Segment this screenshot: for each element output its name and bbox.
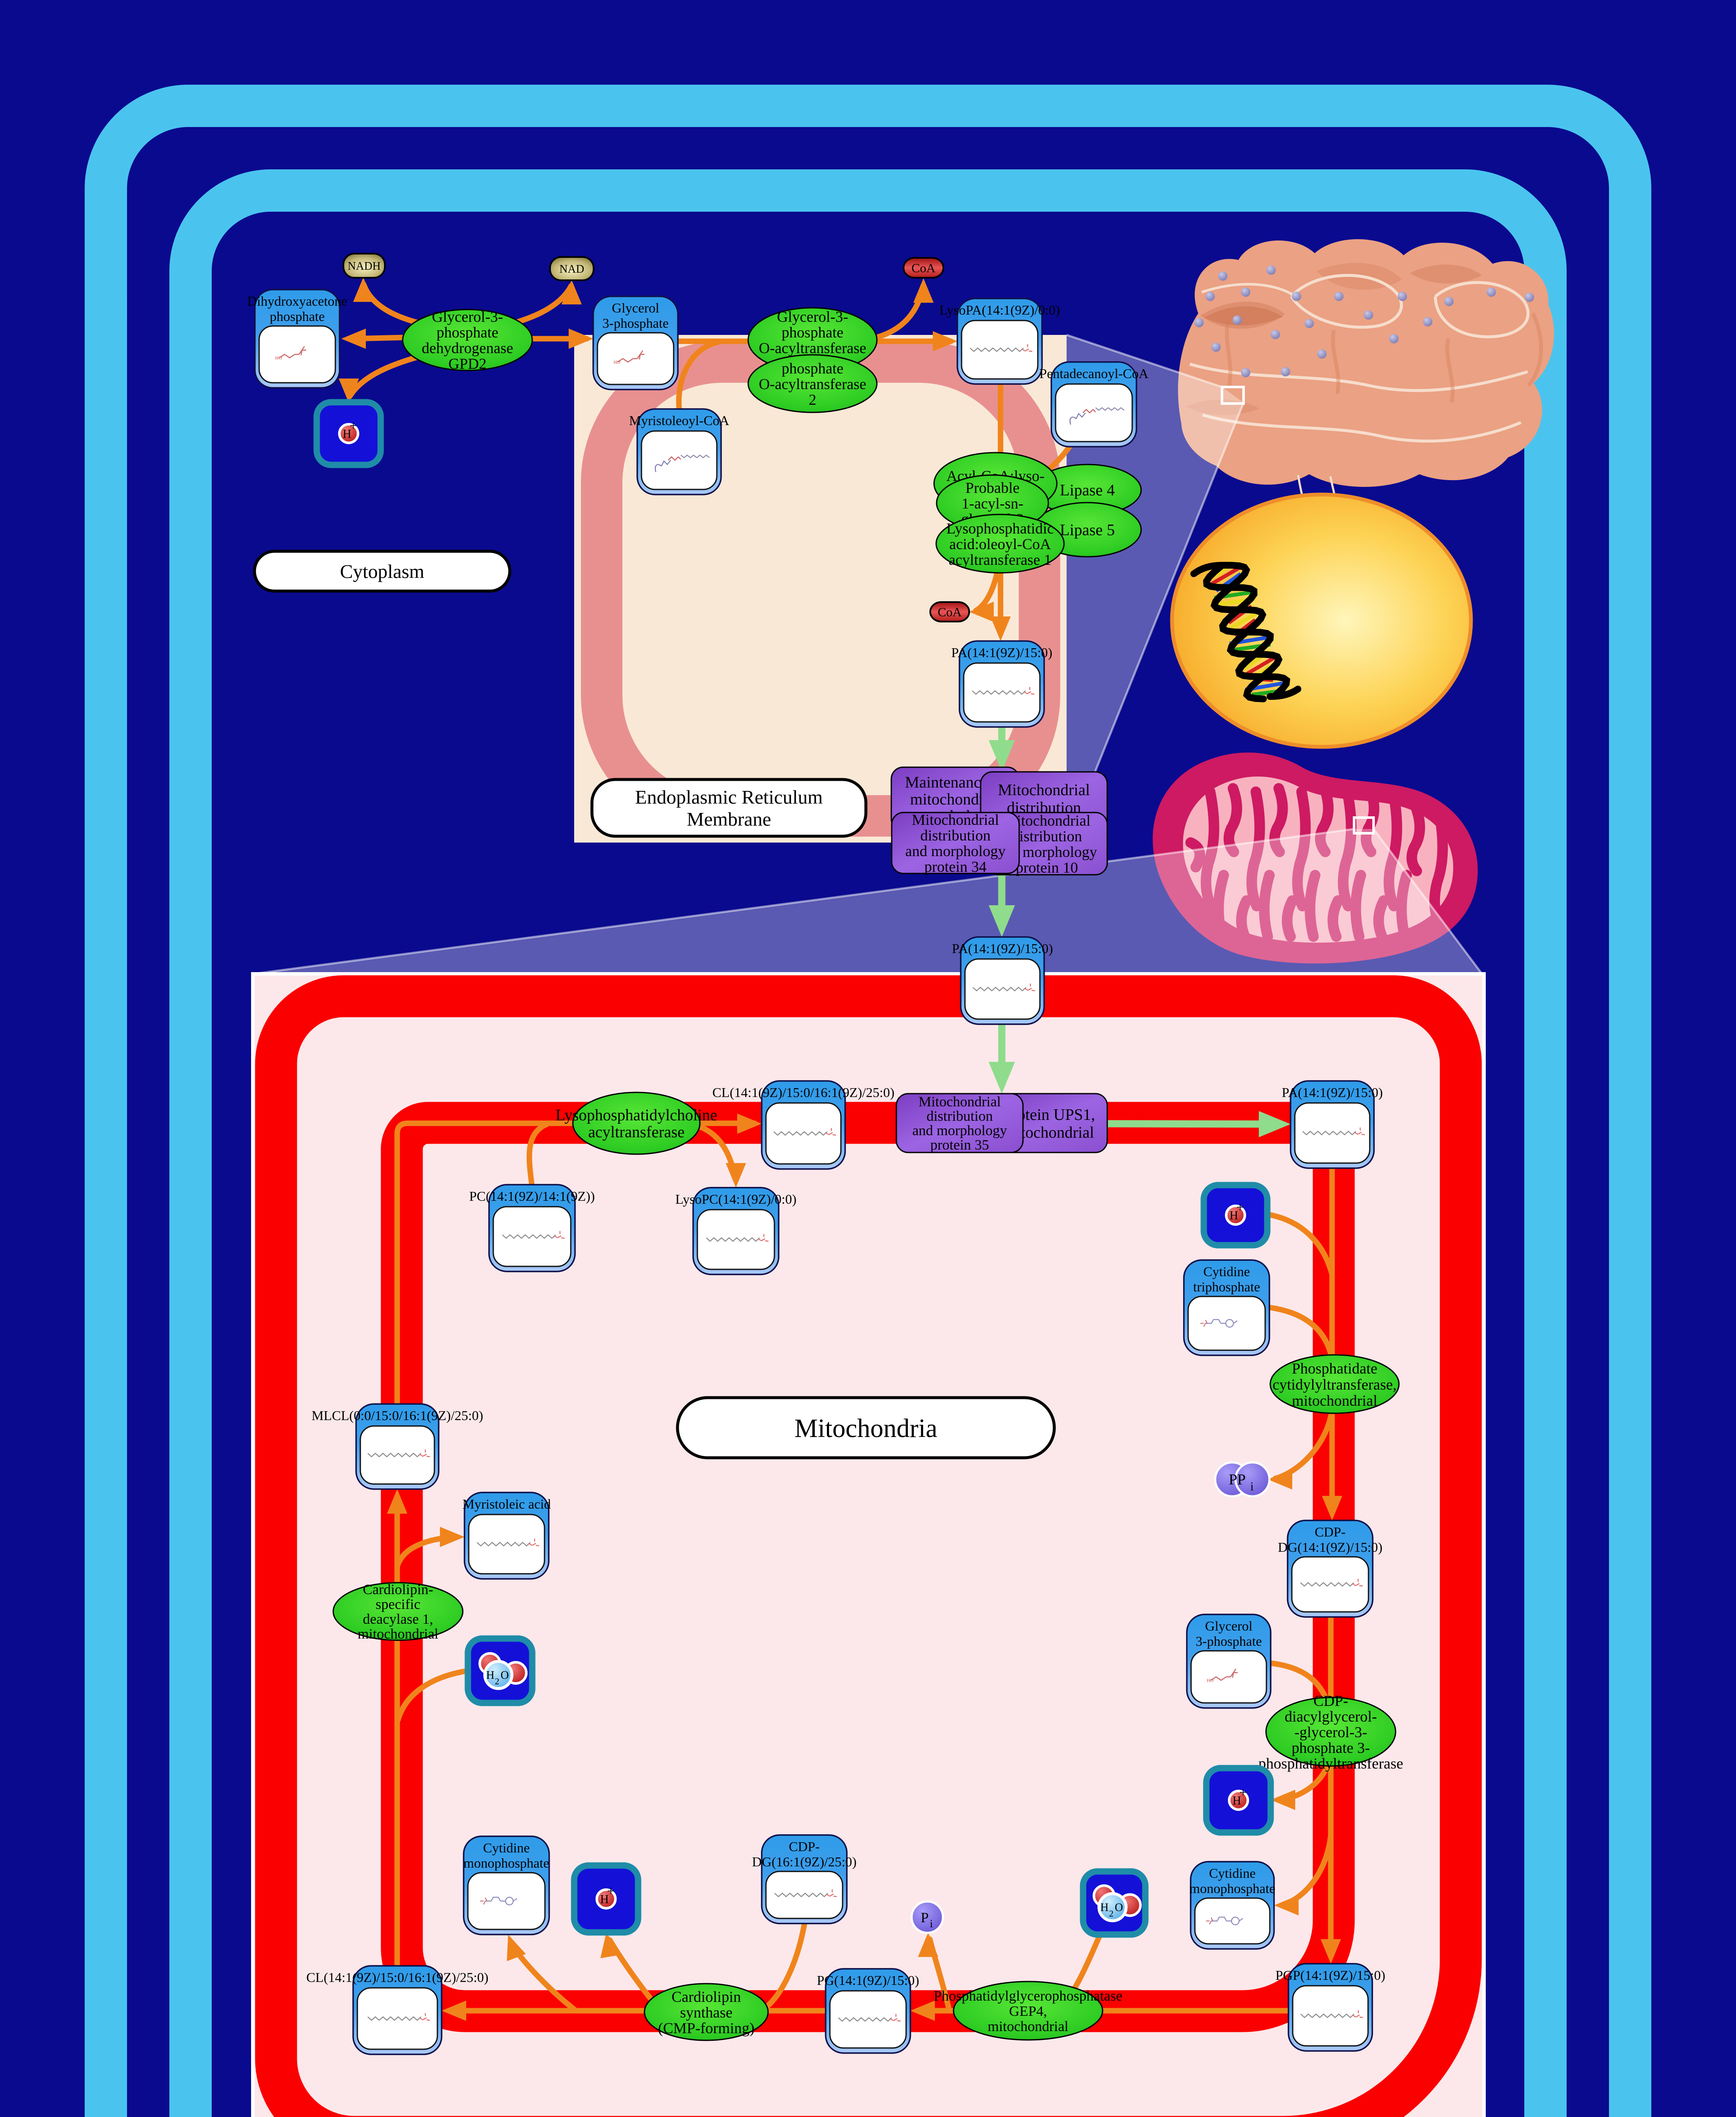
svg-text:i: i (1250, 1480, 1254, 1493)
svg-text:1-acyl-sn-: 1-acyl-sn- (962, 495, 1023, 512)
svg-text:CDP-: CDP- (789, 1839, 820, 1854)
svg-text:PA(14:1(9Z)/15:0): PA(14:1(9Z)/15:0) (952, 941, 1053, 956)
svg-text:CDP-: CDP- (1313, 1692, 1348, 1709)
svg-text:PA(14:1(9Z)/15:0): PA(14:1(9Z)/15:0) (951, 645, 1053, 660)
svg-text:(CMP-forming): (CMP-forming) (658, 2020, 755, 2037)
svg-text:Probable: Probable (965, 479, 1020, 496)
svg-text:Lysophosphatidic: Lysophosphatidic (946, 520, 1054, 537)
svg-text:O: O (500, 1669, 509, 1681)
svg-text:Phosphatidate: Phosphatidate (1292, 1360, 1377, 1377)
svg-text:triphosphate: triphosphate (1193, 1279, 1260, 1294)
svg-text:distribution: distribution (926, 1108, 993, 1124)
svg-text:CoA: CoA (912, 261, 936, 275)
svg-text:i: i (930, 1918, 933, 1930)
svg-text:CL(14:1(9Z)/15:0/16:1(9Z)/25:0: CL(14:1(9Z)/15:0/16:1(9Z)/25:0) (712, 1085, 894, 1100)
svg-text:Cytidine: Cytidine (1209, 1866, 1255, 1881)
svg-text:diacylglycerol-: diacylglycerol- (1285, 1708, 1377, 1725)
svg-text:mitochondrial: mitochondrial (988, 2019, 1069, 2034)
svg-text:Myristoleoyl-CoA: Myristoleoyl-CoA (629, 413, 729, 428)
svg-text:Lipase 4: Lipase 4 (1060, 481, 1115, 499)
svg-text:Cardiolipin: Cardiolipin (672, 1988, 741, 2005)
svg-text:3-phosphate: 3-phosphate (1196, 1633, 1262, 1649)
svg-text:Glycerol-3-: Glycerol-3- (777, 308, 848, 325)
svg-text:-glycerol-3-: -glycerol-3- (1294, 1724, 1367, 1741)
svg-text:NADH: NADH (348, 260, 381, 272)
svg-text:PP: PP (1229, 1471, 1246, 1488)
svg-text:distribution: distribution (1012, 828, 1082, 845)
svg-text:NAD: NAD (559, 263, 584, 275)
svg-text:protein 35: protein 35 (930, 1137, 989, 1153)
svg-text:PA(14:1(9Z)/15:0): PA(14:1(9Z)/15:0) (1282, 1085, 1383, 1100)
svg-text:Phosphatidylglycerophosphatase: Phosphatidylglycerophosphatase (934, 1988, 1122, 2004)
svg-text:synthase: synthase (680, 2004, 733, 2021)
svg-text:+: + (1239, 1785, 1247, 1800)
svg-text:2: 2 (809, 391, 816, 408)
svg-text:Mitochondrial: Mitochondrial (998, 781, 1090, 799)
svg-text:mitochondrial: mitochondrial (1292, 1392, 1377, 1409)
svg-text:Cytidine: Cytidine (483, 1840, 530, 1855)
svg-text:protein 34: protein 34 (924, 858, 987, 875)
svg-text:Cytidine: Cytidine (1203, 1264, 1250, 1279)
svg-text:cytidylyltransferase,: cytidylyltransferase, (1273, 1376, 1397, 1393)
svg-text:HO: HO (614, 360, 620, 365)
svg-text:phosphate: phosphate (270, 309, 325, 324)
svg-text:Dihydroxyacetone: Dihydroxyacetone (247, 293, 347, 309)
svg-text:O-acyltransferase: O-acyltransferase (759, 340, 866, 357)
svg-text:phosphate: phosphate (782, 324, 843, 341)
svg-text:monophosphate: monophosphate (1189, 1881, 1275, 1896)
svg-text:Mitochondrial: Mitochondrial (912, 811, 999, 828)
svg-text:DG(16:1(9Z)/25:0): DG(16:1(9Z)/25:0) (752, 1854, 857, 1869)
svg-text:CDP-: CDP- (1315, 1524, 1346, 1539)
svg-text:Lipase 5: Lipase 5 (1060, 521, 1115, 539)
svg-text:and morphology: and morphology (912, 1123, 1007, 1139)
svg-text:monophosphate: monophosphate (464, 1855, 550, 1871)
svg-text:phosphatidyltransferase: phosphatidyltransferase (1258, 1755, 1403, 1772)
svg-text:phosphate 3-: phosphate 3- (1292, 1739, 1370, 1756)
svg-text:3-phosphate: 3-phosphate (603, 315, 669, 331)
svg-text:Mitochondrial: Mitochondrial (918, 1094, 1001, 1110)
svg-text:HO: HO (275, 356, 282, 361)
svg-text:O: O (1115, 1901, 1123, 1914)
svg-text:H: H (1100, 1901, 1109, 1914)
svg-text:Endoplasmic Reticulum: Endoplasmic Reticulum (635, 786, 823, 808)
svg-text:LysoPA(14:1(9Z)/0:0): LysoPA(14:1(9Z)/0:0) (939, 302, 1060, 318)
svg-text:protein 10: protein 10 (1016, 859, 1078, 876)
svg-text:Cytoplasm: Cytoplasm (340, 561, 425, 582)
svg-text:CL(14:1(9Z)/15:0/16:1(9Z)/25:0: CL(14:1(9Z)/15:0/16:1(9Z)/25:0) (306, 1970, 488, 1985)
svg-text:GPD2: GPD2 (448, 355, 487, 372)
svg-text:CoA: CoA (938, 605, 962, 619)
svg-text:deacylase 1,: deacylase 1, (363, 1611, 433, 1627)
svg-text:Glycerol: Glycerol (612, 300, 659, 315)
svg-text:H: H (486, 1669, 495, 1681)
svg-text:acyltransferase 1: acyltransferase 1 (949, 551, 1052, 568)
svg-text:+: + (607, 1883, 615, 1899)
svg-text:Myristoleic acid: Myristoleic acid (462, 1496, 551, 1512)
svg-text:Cardiolipin-: Cardiolipin- (363, 1582, 433, 1597)
svg-text:dehydrogenase: dehydrogenase (422, 340, 513, 357)
svg-text:PGP(14:1(9Z)/15:0): PGP(14:1(9Z)/15:0) (1275, 1968, 1385, 1983)
svg-text:2: 2 (495, 1676, 500, 1686)
svg-text:phosphate: phosphate (782, 360, 843, 377)
svg-text:PG(14:1(9Z)/15:0): PG(14:1(9Z)/15:0) (817, 1973, 919, 1988)
svg-text:Mitochondria: Mitochondria (794, 1414, 937, 1443)
svg-text:PC(14:1(9Z)/14:1(9Z)): PC(14:1(9Z)/14:1(9Z)) (469, 1188, 595, 1204)
svg-text:acyltransferase: acyltransferase (588, 1123, 685, 1141)
svg-text:mitochondrial: mitochondrial (358, 1626, 439, 1642)
svg-text:Lysophosphatidylcholine: Lysophosphatidylcholine (556, 1106, 717, 1124)
svg-text:+: + (350, 418, 357, 433)
svg-text:Glycerol-3-: Glycerol-3- (432, 308, 503, 325)
svg-text:specific: specific (376, 1597, 420, 1612)
svg-text:GEP4,: GEP4, (1009, 2004, 1047, 2019)
svg-text:Membrane: Membrane (687, 808, 771, 830)
svg-text:DG(14:1(9Z)/15:0): DG(14:1(9Z)/15:0) (1278, 1539, 1382, 1555)
svg-text:HO: HO (1207, 1678, 1214, 1683)
svg-text:Glycerol: Glycerol (1205, 1618, 1252, 1633)
svg-text:distribution: distribution (920, 827, 990, 844)
svg-text:O-acyltransferase: O-acyltransferase (759, 376, 866, 392)
svg-text:and morphology: and morphology (905, 843, 1006, 860)
svg-text:P: P (921, 1910, 929, 1926)
svg-text:+: + (1236, 1199, 1244, 1215)
svg-text:phosphate: phosphate (437, 324, 498, 341)
svg-text:LysoPC(14:1(9Z)/0:0): LysoPC(14:1(9Z)/0:0) (675, 1191, 796, 1207)
svg-text:acid:oleoyl-CoA: acid:oleoyl-CoA (949, 536, 1051, 553)
svg-text:Pentadecanoyl-CoA: Pentadecanoyl-CoA (1039, 366, 1149, 381)
svg-text:2: 2 (1109, 1909, 1114, 1919)
svg-text:MLCL(0:0/15:0/16:1(9Z)/25:0): MLCL(0:0/15:0/16:1(9Z)/25:0) (312, 1408, 483, 1423)
